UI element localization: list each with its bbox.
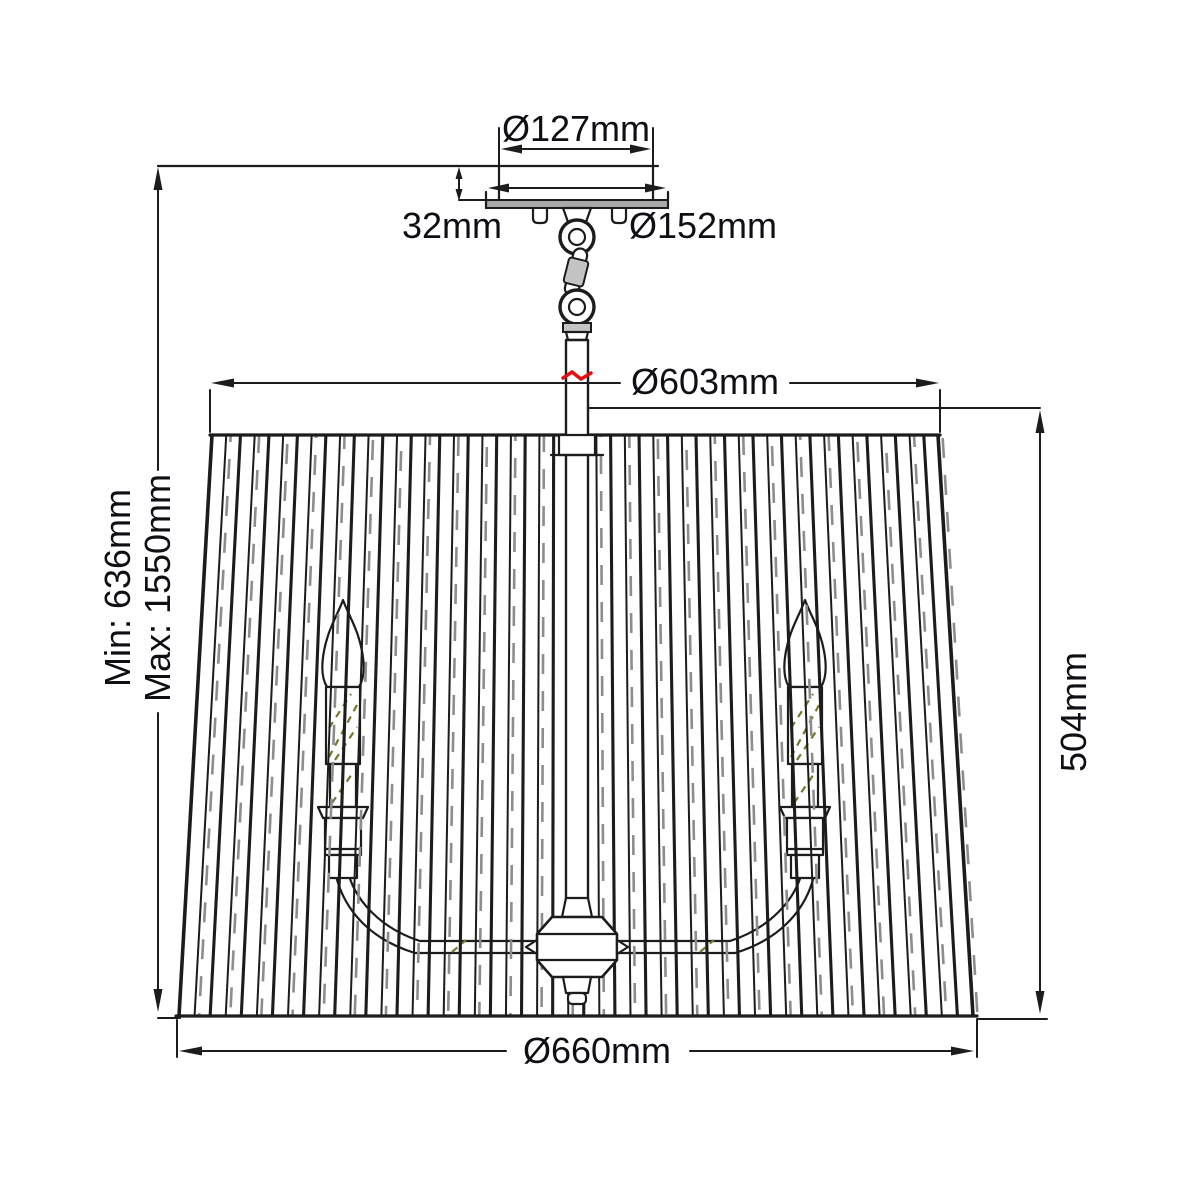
slat xyxy=(490,435,496,1016)
slat xyxy=(639,435,646,1016)
slat xyxy=(195,435,227,1016)
slat xyxy=(366,435,383,1016)
arrow-down-icon xyxy=(1036,991,1045,1014)
arrow-down-icon xyxy=(154,989,163,1012)
dim-canopy-diameter: Ø127mm xyxy=(499,108,653,165)
slat-shading xyxy=(292,435,316,1016)
slat xyxy=(881,435,911,1016)
dim-shade-bottom-diameter: Ø660mm xyxy=(177,1020,977,1071)
slat xyxy=(924,435,958,1016)
shade-top-diameter-label: Ø603mm xyxy=(631,361,779,402)
chain-ring-top-hole xyxy=(569,229,585,245)
slat xyxy=(653,435,661,1016)
hub-flange xyxy=(562,898,592,917)
diagram-canvas: Ø127mm 32mm Ø152mm Ø603mm Min: 636mm Max… xyxy=(0,0,1200,1200)
arrow-right-icon xyxy=(951,1047,974,1056)
slat-shading xyxy=(658,435,666,1016)
canopy-diameter-label: Ø127mm xyxy=(502,108,650,149)
slat xyxy=(226,435,255,1016)
slat xyxy=(668,435,678,1016)
shade-bottom-diameter-label: Ø660mm xyxy=(523,1030,671,1071)
dim-canopy-height: 32mm xyxy=(402,167,502,246)
slat xyxy=(696,435,708,1016)
drip-pan xyxy=(780,807,830,818)
hub-cap xyxy=(563,977,591,993)
mounting-tab-right xyxy=(612,208,626,223)
canopy xyxy=(499,166,653,200)
slat xyxy=(179,435,212,1016)
shade-height-label: 504mm xyxy=(1053,652,1094,772)
slat xyxy=(428,435,440,1016)
arrow-up-icon xyxy=(154,167,163,190)
slat xyxy=(257,435,283,1016)
dim-drop-range: Min: 636mm Max: 1550mm xyxy=(97,167,180,1018)
slat xyxy=(397,435,411,1016)
slat xyxy=(824,435,848,1016)
drop-min-label: Min: 636mm xyxy=(97,489,138,687)
hub-finial xyxy=(568,993,586,1004)
chain-link-barrel xyxy=(563,257,589,287)
canopy-height-label: 32mm xyxy=(402,205,502,246)
arrow-left-icon xyxy=(211,379,234,388)
slat xyxy=(537,435,539,1016)
dim-plate-diameter: Ø152mm xyxy=(488,184,777,247)
hub-body xyxy=(537,917,617,977)
slat xyxy=(625,435,631,1016)
slat xyxy=(522,435,526,1016)
arrow-right-icon xyxy=(645,184,666,193)
arrow-right-icon xyxy=(916,379,939,388)
slat xyxy=(853,435,880,1016)
mounting-tab-left xyxy=(533,208,547,223)
hanging-rod xyxy=(551,340,603,920)
dim-lines xyxy=(459,179,486,200)
slat xyxy=(506,435,511,1016)
rim-socket xyxy=(559,435,595,455)
dimension-diagram: Ø127mm 32mm Ø152mm Ø603mm Min: 636mm Max… xyxy=(0,0,1200,1200)
drop-max-label: Max: 1550mm xyxy=(137,474,178,702)
arrow-left-icon xyxy=(179,1047,202,1056)
arrow-up-icon xyxy=(456,167,463,179)
chain xyxy=(560,208,594,340)
rod-collar xyxy=(563,323,591,332)
bulb-glass-icon xyxy=(322,600,363,687)
plate-diameter-label: Ø152mm xyxy=(629,205,777,246)
arrow-up-icon xyxy=(1036,410,1045,433)
chain-ring-bottom-hole xyxy=(569,299,585,315)
slat xyxy=(459,435,468,1016)
slat xyxy=(910,435,942,1016)
candle-base xyxy=(329,855,357,878)
slat-shading xyxy=(943,435,978,1016)
rod xyxy=(566,340,588,920)
slat xyxy=(938,435,973,1016)
slat xyxy=(724,435,739,1016)
